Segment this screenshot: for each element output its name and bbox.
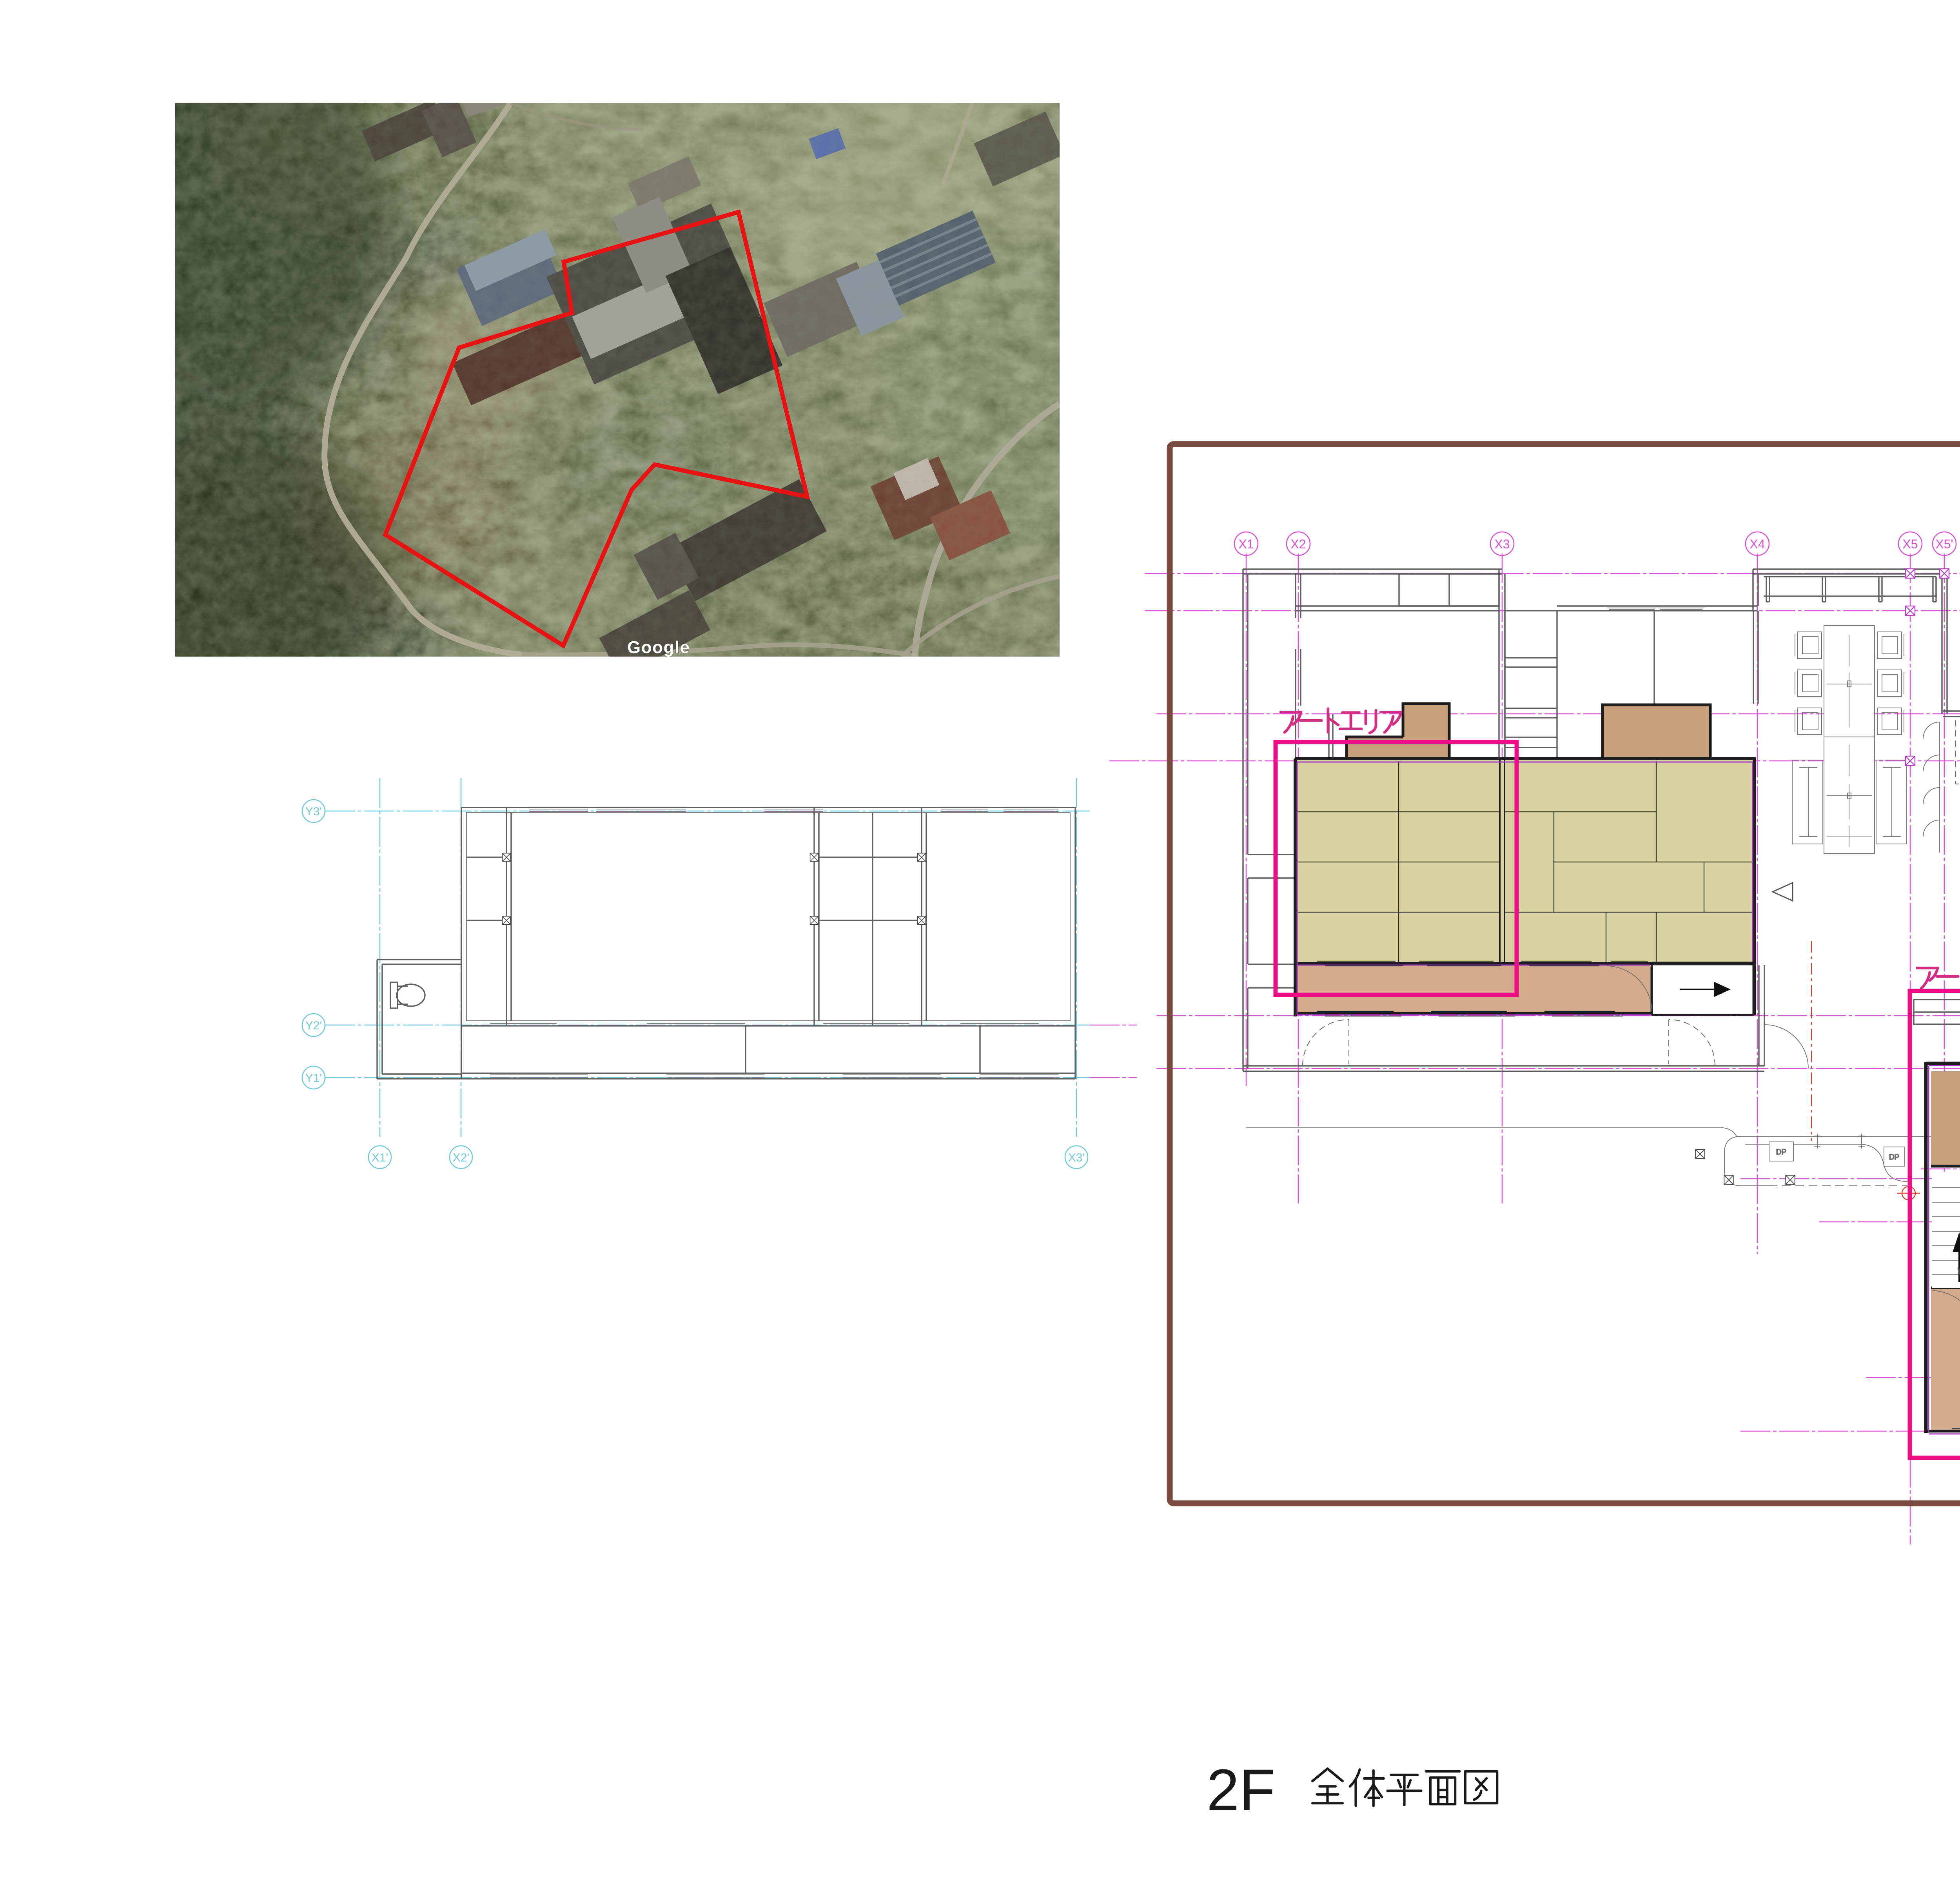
svg-text:X3: X3 — [1494, 537, 1510, 551]
svg-text:X5': X5' — [1935, 537, 1953, 551]
svg-text:X2: X2 — [1290, 537, 1306, 551]
svg-text:DP: DP — [1889, 1153, 1899, 1161]
svg-text:X4: X4 — [1749, 537, 1765, 551]
svg-text:X5: X5 — [1902, 537, 1918, 551]
svg-text:DP: DP — [1776, 1148, 1786, 1156]
svg-text:Y3': Y3' — [305, 805, 322, 818]
svg-text:Google: Google — [627, 638, 690, 657]
svg-text:X3': X3' — [1068, 1151, 1085, 1164]
svg-text:Y2': Y2' — [305, 1019, 322, 1032]
svg-text:Y1': Y1' — [305, 1072, 322, 1085]
svg-text:2F: 2F — [1207, 1757, 1275, 1823]
svg-text:X1: X1 — [1238, 537, 1254, 551]
svg-text:X2': X2' — [453, 1151, 469, 1164]
svg-text:X1': X1' — [372, 1151, 388, 1164]
